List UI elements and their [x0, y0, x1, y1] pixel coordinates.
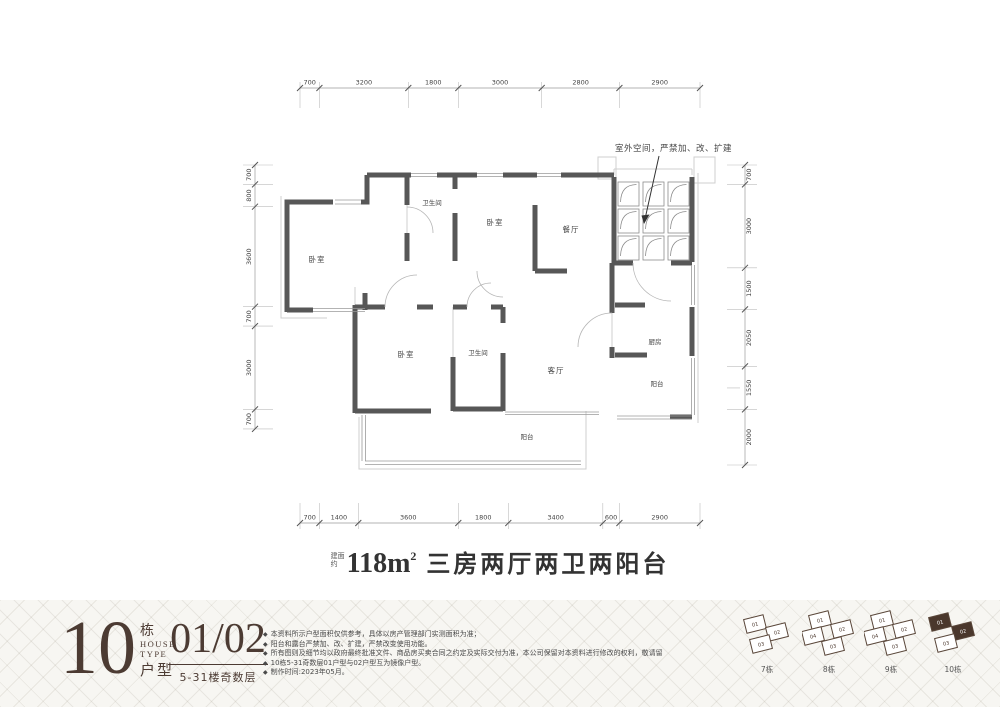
svg-text:2900: 2900: [651, 79, 668, 87]
svg-text:3000: 3000: [245, 360, 253, 377]
unit-number-block: 01/02 5-31楼奇数层: [168, 616, 268, 685]
room-label-balcony-bottom: 阳台: [521, 432, 534, 441]
area-sup: 2: [410, 549, 416, 563]
svg-text:3000: 3000: [745, 218, 753, 235]
disclaimer-item: 阳台和露台严禁加、改、扩建，严禁改变使用功能。: [263, 640, 663, 650]
floorplan-drawing: 700 3200 1800 3000 2800 2900 700 1400 36…: [215, 55, 775, 555]
svg-text:1550: 1550: [745, 380, 753, 397]
annotation-arrow: [645, 156, 659, 219]
disclaimer-list: 本资料所示户型面积仅供参考，具体以房产管理部门实测面积为准； 阳台和露台严禁加、…: [263, 630, 663, 678]
svg-text:3600: 3600: [245, 248, 253, 265]
svg-text:1800: 1800: [475, 514, 492, 522]
room-label-balcony-right: 阳台: [651, 379, 664, 388]
building-name: 8栋: [823, 664, 836, 674]
disclaimer-item: 本资料所示户型面积仅供参考，具体以房产管理部门实测面积为准；: [263, 630, 663, 640]
svg-text:800: 800: [245, 189, 253, 201]
svg-text:2900: 2900: [651, 514, 668, 522]
svg-text:3600: 3600: [400, 514, 417, 522]
building-name: 7栋: [761, 664, 774, 674]
room-label-bedroom1: 卧室: [309, 254, 326, 264]
svg-text:700: 700: [303, 514, 315, 522]
walls: [287, 175, 692, 417]
dimension-labels-top: 700 3200 1800 3000 2800 2900: [303, 79, 667, 87]
block-number: 10: [60, 610, 136, 686]
building-name: 9栋: [885, 664, 898, 674]
building-locator-7: 01 02 03 7栋: [740, 610, 794, 684]
door-arcs: [385, 207, 671, 347]
disclaimer-item: 所有图则及细节均以政府最终批准文件、商品房买卖合同之约定及实际交付为准，本公司保…: [263, 649, 663, 659]
room-label-living: 客厅: [548, 365, 565, 375]
outdoor-grid: [618, 182, 689, 260]
svg-text:3400: 3400: [547, 514, 564, 522]
layout-description: 三房两厅两卫两阳台: [426, 552, 669, 578]
building-locator-10: 01 02 03 10栋: [926, 610, 980, 684]
svg-text:700: 700: [245, 310, 253, 322]
svg-text:3200: 3200: [356, 79, 373, 87]
room-labels: 卧室 卫生间 卧室 餐厅 卧室 卫生间 客厅 厨房 阳台 阳台: [309, 198, 664, 441]
room-label-kitchen: 厨房: [649, 337, 662, 346]
svg-text:1800: 1800: [425, 79, 442, 87]
annotation-text: 室外空间，严禁加、改、扩建: [615, 143, 732, 154]
room-label-dining: 餐厅: [563, 225, 580, 234]
disclaimer-item: 制作时间:2023年05月。: [263, 668, 663, 678]
area-value: 118m: [347, 548, 411, 579]
svg-text:3000: 3000: [492, 79, 509, 87]
svg-text:2800: 2800: [572, 79, 589, 87]
svg-text:1500: 1500: [745, 280, 753, 297]
room-label-bath2: 卫生间: [468, 348, 488, 357]
area-caption: 建面约118m2三房两厅两卫两阳台: [0, 544, 1000, 580]
floorplan-page: 700 3200 1800 3000 2800 2900 700 1400 36…: [0, 0, 1000, 707]
building-locator-9: 01 02 04 03 9栋: [864, 610, 918, 684]
footer-band: 10 栋 HOUSE TYPE 户型 01/02 5-31楼奇数层 本资料所示户…: [0, 600, 1000, 707]
unit-numbers: 01/02: [168, 616, 268, 662]
svg-text:2000: 2000: [745, 429, 753, 446]
divider-rule: [168, 664, 268, 665]
building-name: 10栋: [944, 664, 962, 674]
svg-text:1400: 1400: [331, 514, 348, 522]
dimension-labels-right: 700 3000 1500 2050 1550 2000: [745, 168, 753, 445]
room-label-bedroom2: 卧室: [487, 217, 504, 227]
room-label-bedroom3: 卧室: [398, 349, 415, 359]
svg-text:700: 700: [745, 168, 753, 180]
svg-text:600: 600: [605, 514, 617, 522]
svg-text:700: 700: [303, 79, 315, 87]
building-locator-8: 01 02 04 03 8栋: [802, 610, 856, 684]
floor-range: 5-31楼奇数层: [168, 669, 268, 685]
svg-text:2050: 2050: [745, 330, 753, 347]
svg-text:700: 700: [245, 168, 253, 180]
dimension-labels-left: 700 800 3600 700 3000 700: [245, 168, 253, 425]
building-locator-row: 01 02 03 7栋 01 02 04 03 8栋 01 02 04 03 9…: [740, 610, 980, 684]
area-prefix: 建面约: [331, 552, 347, 568]
svg-text:700: 700: [245, 413, 253, 425]
room-label-bath1: 卫生间: [422, 198, 442, 207]
disclaimer-item: 10栋5-31奇数层01户型与02户型互为镜像户型。: [263, 659, 663, 669]
